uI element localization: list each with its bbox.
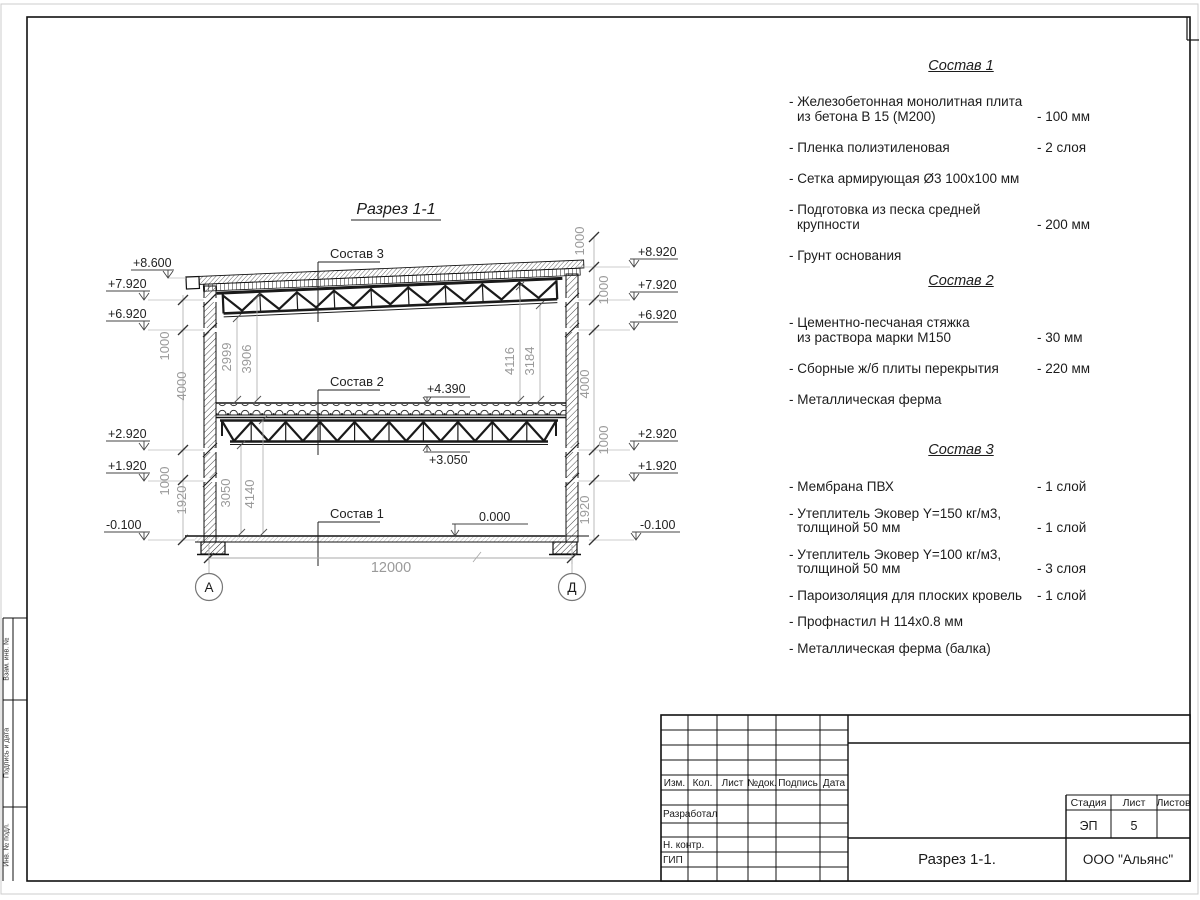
elevation-marks-left: +8.600 +7.920 +6.920 +2.920 +1.920 -0.10… (104, 256, 174, 540)
list-item: - Цементно-песчаная стяжкаиз раствора ма… (789, 315, 1133, 345)
elev-left-4: +1.920 (108, 459, 147, 473)
drawing-sheet: { "drawing": { "title": "Разрез 1-1", "l… (0, 0, 1200, 900)
tb-sheets-label: Листов (1156, 797, 1191, 809)
list-item: - Подготовка из песка среднейкрупности -… (789, 202, 1133, 232)
list-item: - Профнастил Н 114х0.8 мм (789, 615, 1133, 630)
elev-left-0: +8.600 (133, 256, 172, 270)
dim-right-1: 1000 (596, 276, 611, 305)
strip-label-podpis: Подпись и дата (4, 728, 11, 778)
elev-right-4: +1.920 (638, 459, 677, 473)
title-block: Изм. Кол. Лист №док. Подпись Дата Разраб… (661, 715, 1191, 881)
list-item: - Железобетонная монолитная плитаиз бето… (789, 94, 1133, 124)
span-value: 12000 (371, 560, 411, 576)
dim-inner-3184: 3184 (522, 347, 537, 376)
elev-left-2: +6.920 (108, 307, 147, 321)
tb-company: ООО "Альянс" (1083, 852, 1173, 867)
strip-label-vzam: Взам. инв. № (4, 637, 11, 680)
mark-4390: +4.390 (427, 382, 466, 396)
dim-inner-4116: 4116 (502, 347, 517, 375)
wall-dimension-ticks (203, 293, 579, 487)
axis-letter-d: Д (567, 580, 576, 595)
tb-col-podpis: Подпись (778, 778, 818, 789)
span-dimension: 12000 А Д (196, 545, 586, 601)
foundation-right (549, 542, 581, 555)
elev-right-0: +8.920 (638, 245, 677, 259)
dim-left-3: 1920 (174, 486, 189, 515)
dim-inner-2999: 2999 (219, 343, 234, 372)
list-item: - Металлическая ферма (789, 392, 1133, 407)
middle-floor-slab (216, 403, 566, 418)
composition-section-1: Состав 1 - Железобетонная монолитная пли… (789, 58, 1133, 279)
tb-row-gip: ГИП (663, 855, 683, 866)
strip-label-inv: Инв. № подл. (4, 823, 11, 867)
tb-row-nkontr: Н. контр. (663, 840, 704, 851)
middle-truss (220, 420, 558, 445)
tb-sheet-value: 5 (1131, 819, 1138, 833)
list-item: - Мембрана ПВХ - 1 слой (789, 480, 1133, 495)
elev-left-3: +2.920 (108, 427, 147, 441)
mark-3050: +3.050 (429, 453, 468, 467)
composition-2-title: Состав 2 (789, 273, 1133, 289)
list-item: - Пленка полиэтиленовая - 2 слоя (789, 140, 1133, 155)
section-view: Разрез 1-1 (104, 201, 680, 601)
tb-col-dok: №док. (747, 778, 776, 789)
frame-corner-cell (1187, 17, 1199, 40)
label-sostav2: Состав 2 (330, 374, 384, 389)
dim-inner-3050: 3050 (218, 479, 233, 508)
elevation-marks-right: +8.920 +7.920 +6.920 +2.920 +1.920 -0.10… (629, 245, 680, 540)
elev-right-5: -0.100 (640, 518, 675, 532)
roof-assembly (186, 260, 585, 318)
tb-row-razrabotal: Разработал (663, 808, 718, 820)
list-item: - Утеплитель Эковер Y=100 кг/м3,толщиной… (789, 548, 1133, 577)
elev-right-2: +6.920 (638, 308, 677, 322)
composition-section-2: Состав 2 - Цементно-песчаная стяжкаиз ра… (789, 273, 1133, 423)
elev-left-1: +7.920 (108, 277, 147, 291)
tb-col-kol: Кол. (693, 778, 713, 789)
list-item: - Пароизоляция для плоских кровель - 1 с… (789, 589, 1133, 604)
list-item: - Утеплитель Эковер Y=150 кг/м3,толщиной… (789, 507, 1133, 536)
foundation-left (197, 542, 229, 555)
dim-right-4: 1920 (577, 496, 592, 525)
list-item: - Металлическая ферма (балка) (789, 642, 1133, 657)
composition-1-title: Состав 1 (789, 58, 1133, 74)
dim-left-0: 1000 (157, 332, 172, 361)
dim-right-2: 4000 (577, 370, 592, 399)
mark-0000: 0.000 (479, 510, 510, 524)
composition-section-3: Состав 3 - Мембрана ПВХ - 1 слой - Утепл… (789, 442, 1133, 668)
elev-left-5: -0.100 (106, 518, 141, 532)
composition-3-title: Состав 3 (789, 442, 1133, 458)
section-title: Разрез 1-1 (356, 201, 435, 218)
elev-right-3: +2.920 (638, 427, 677, 441)
tb-col-izm: Изм. (664, 778, 685, 789)
list-item: - Грунт основания (789, 248, 1133, 263)
elev-right-1: +7.920 (638, 278, 677, 292)
dim-left-1: 4000 (174, 372, 189, 401)
tb-stage-label: Стадия (1071, 797, 1107, 809)
tb-doc-title: Разрез 1-1. (918, 851, 996, 868)
dim-right-3: 1000 (596, 426, 611, 455)
ground-floor (185, 536, 589, 542)
list-item: - Сетка армирующая Ø3 100х100 мм (789, 171, 1133, 186)
axis-letter-a: А (204, 580, 213, 595)
label-sostav3: Состав 3 (330, 246, 384, 261)
tb-stage-value: ЭП (1080, 819, 1098, 833)
dim-right-0: 1000 (572, 227, 587, 256)
dim-inner-3906: 3906 (239, 345, 254, 374)
tb-col-data: Дата (823, 778, 846, 789)
tb-sheet-label: Лист (1123, 797, 1146, 809)
dim-inner-4140: 4140 (242, 480, 257, 509)
list-item: - Сборные ж/б плиты перекрытия - 220 мм (789, 361, 1133, 376)
label-sostav1: Состав 1 (330, 506, 384, 521)
dim-left-2: 1000 (157, 467, 172, 496)
tb-col-list: Лист (722, 778, 744, 789)
